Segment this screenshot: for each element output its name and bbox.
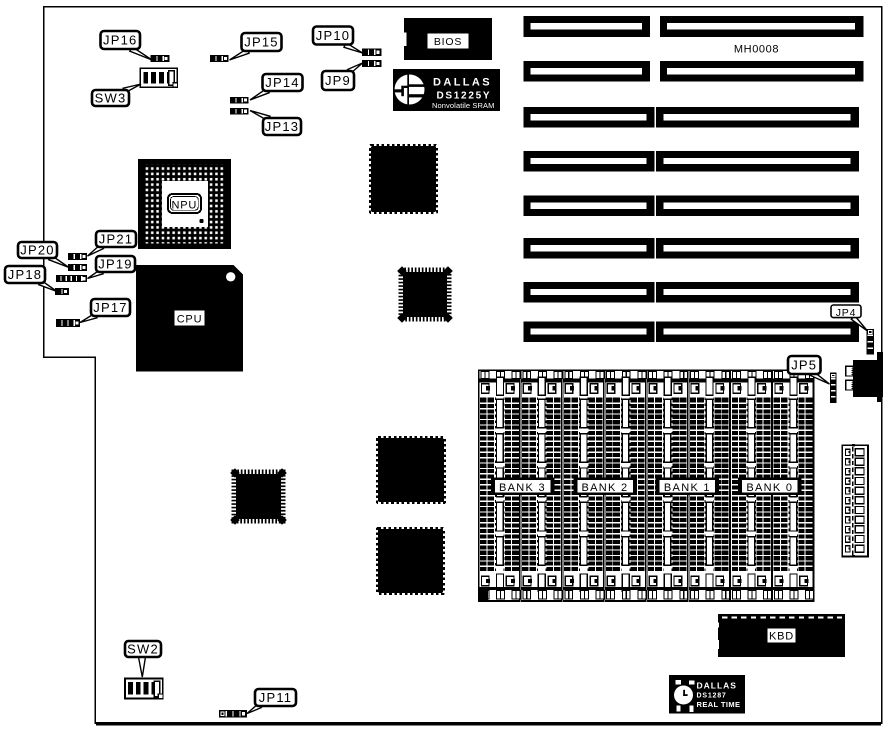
- svg-text:JP11: JP11: [259, 690, 292, 705]
- svg-text:NPU: NPU: [171, 199, 197, 211]
- svg-text:MH0008: MH0008: [734, 44, 779, 56]
- svg-text:BANK 1: BANK 1: [664, 482, 711, 494]
- svg-text:REAL TIME: REAL TIME: [697, 700, 741, 709]
- svg-text:BANK 0: BANK 0: [746, 482, 793, 494]
- svg-text:JP14: JP14: [265, 75, 299, 90]
- svg-text:DALLAS: DALLAS: [697, 681, 737, 691]
- svg-text:Nonvolatile SRAM: Nonvolatile SRAM: [432, 101, 494, 110]
- svg-text:BANK 2: BANK 2: [581, 482, 628, 494]
- svg-text:KBD: KBD: [769, 631, 794, 643]
- svg-text:JP20: JP20: [20, 243, 54, 258]
- svg-text:SW3: SW3: [95, 91, 127, 106]
- svg-text:BIOS: BIOS: [434, 36, 462, 48]
- svg-text:BANK 3: BANK 3: [499, 482, 546, 494]
- svg-text:JP21: JP21: [99, 232, 133, 247]
- svg-text:JP19: JP19: [98, 257, 132, 272]
- svg-text:JP13: JP13: [265, 119, 299, 134]
- svg-text:DS1225Y: DS1225Y: [437, 91, 492, 102]
- svg-text:JP4: JP4: [836, 307, 857, 319]
- svg-text:JP5: JP5: [791, 358, 817, 373]
- svg-text:JP17: JP17: [93, 300, 127, 315]
- svg-text:DALLAS: DALLAS: [433, 77, 492, 89]
- svg-text:JP16: JP16: [103, 33, 137, 48]
- svg-text:DS1287: DS1287: [697, 693, 727, 700]
- svg-text:CPU: CPU: [177, 314, 203, 326]
- svg-text:JP9: JP9: [325, 73, 351, 88]
- svg-text:JP10: JP10: [316, 28, 350, 43]
- svg-text:JP15: JP15: [244, 35, 278, 50]
- svg-text:JP18: JP18: [8, 267, 42, 282]
- svg-text:SW2: SW2: [127, 642, 159, 657]
